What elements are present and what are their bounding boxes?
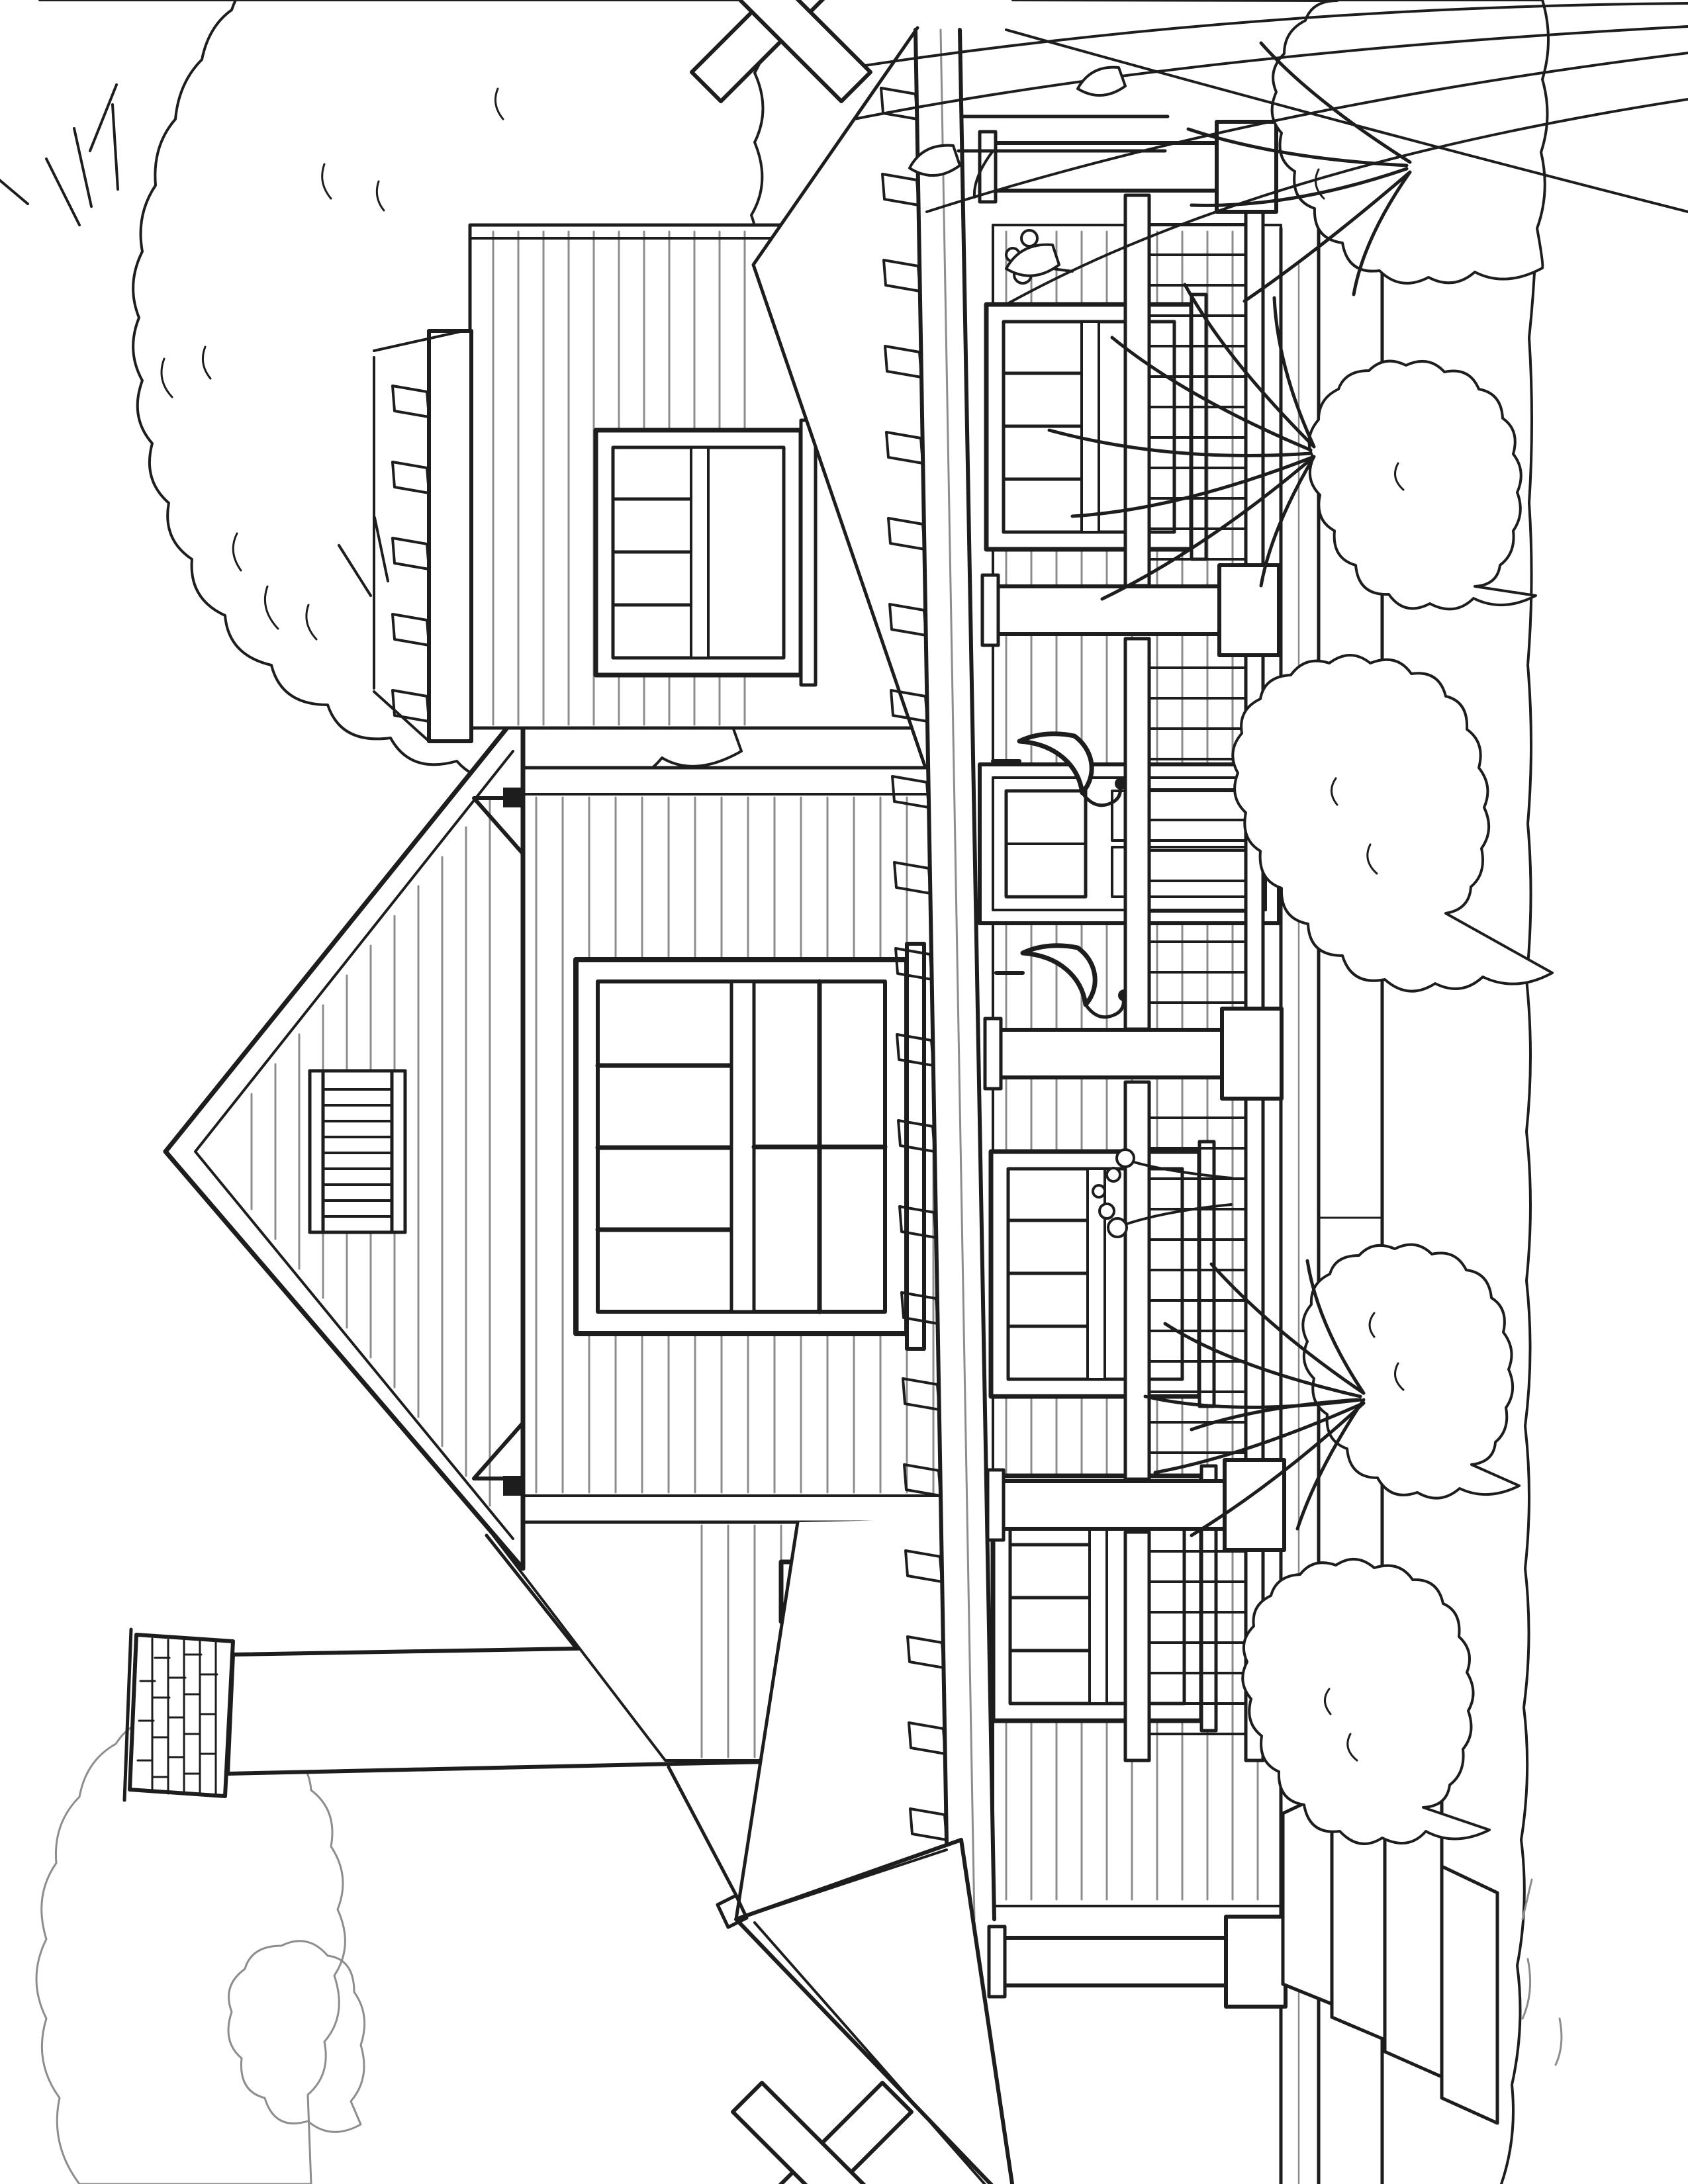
cross-mark [733, 2083, 912, 2184]
main-roof-eave-rafter-tails [374, 331, 471, 741]
gable-wing-wall [493, 768, 948, 1522]
right-wing-window [596, 420, 816, 685]
porch-window-right [986, 295, 1206, 559]
tree-branches [0, 85, 388, 596]
shrub [1309, 361, 1536, 610]
main-front-gable [165, 708, 523, 1569]
rotated-artwork-container: Black-and-white line-art coloring page o… [0, 0, 1688, 2184]
coloring-page: Black-and-white line-art coloring page o… [0, 0, 1688, 2184]
large-four-over-one-window [576, 944, 924, 1349]
cross-mark [692, 0, 870, 101]
porch-window-middle [991, 1142, 1214, 1406]
coloring-page-artwork: Black-and-white line-art coloring page o… [0, 0, 1688, 2184]
gable-louver-vent [310, 1071, 405, 1232]
column [989, 1917, 1286, 2007]
